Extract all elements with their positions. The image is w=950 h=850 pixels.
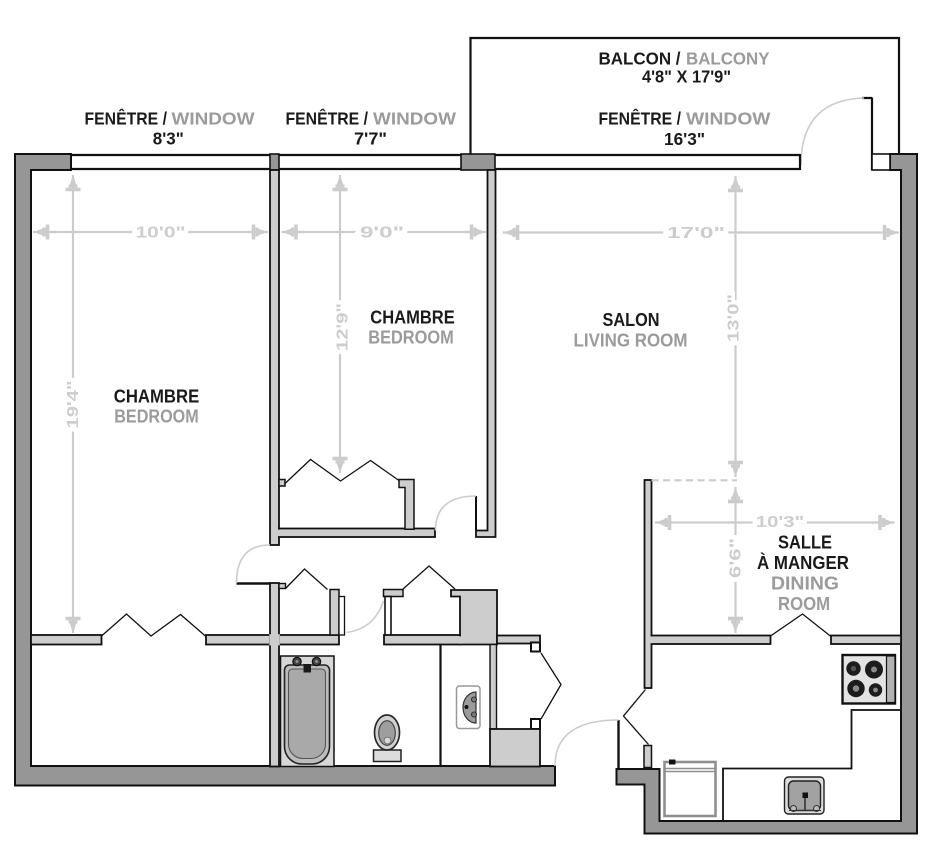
svg-text:12'9": 12'9" [335,303,352,351]
svg-text:BEDROOM: BEDROOM [368,327,454,348]
svg-text:13'0": 13'0" [726,294,743,342]
svg-text:FENÊTRE /: FENÊTRE / [85,108,168,129]
svg-text:9'0": 9'0" [360,225,404,242]
svg-text:17'0": 17'0" [667,225,725,242]
svg-text:7'7": 7'7" [354,129,387,149]
svg-text:BALCON /: BALCON / [599,49,681,69]
svg-text:WINDOW: WINDOW [373,109,457,129]
svg-text:16'3": 16'3" [664,129,705,149]
svg-text:10'0": 10'0" [136,225,186,242]
svg-text:SALLE: SALLE [778,532,832,553]
svg-text:SALON: SALON [603,309,660,330]
svg-text:WINDOW: WINDOW [686,109,771,129]
svg-text:LIVING ROOM: LIVING ROOM [574,330,688,351]
svg-text:WINDOW: WINDOW [172,109,256,129]
svg-text:4'8" X 17'9": 4'8" X 17'9" [642,67,731,87]
svg-text:ROOM: ROOM [778,593,830,614]
svg-text:CHAMBRE: CHAMBRE [114,386,200,407]
svg-text:10'3": 10'3" [756,514,805,531]
svg-text:FENÊTRE /: FENÊTRE / [599,108,682,129]
svg-text:BALCONY: BALCONY [686,49,770,69]
svg-text:CHAMBRE: CHAMBRE [370,307,455,328]
svg-text:DINING: DINING [771,573,839,594]
svg-text:6'6": 6'6" [728,538,745,578]
svg-text:FENÊTRE /: FENÊTRE / [286,108,369,129]
svg-text:8'3": 8'3" [153,129,184,149]
svg-text:19'4": 19'4" [65,381,82,429]
svg-text:À MANGER: À MANGER [757,552,849,573]
svg-text:BEDROOM: BEDROOM [114,406,199,427]
